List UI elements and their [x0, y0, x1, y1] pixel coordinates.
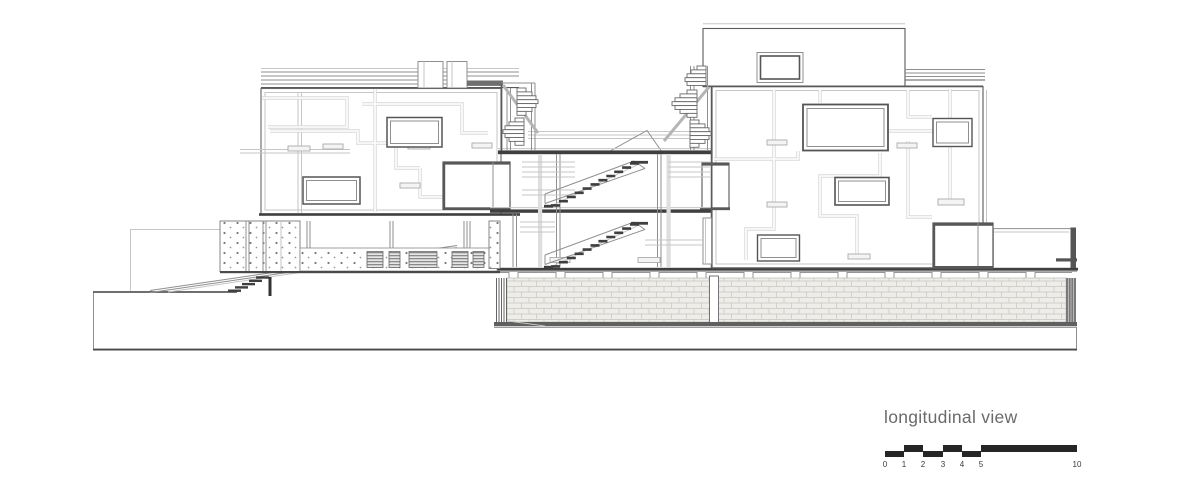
window-right-large	[803, 105, 888, 151]
terrace-railing	[528, 132, 710, 139]
window-penthouse	[757, 53, 803, 83]
roof-box	[447, 62, 467, 89]
central-stair-bay	[490, 66, 712, 269]
basement-wall	[490, 268, 1078, 328]
basement-base-band	[494, 322, 1077, 326]
window-right-mid	[835, 178, 889, 206]
window-left-lower	[303, 177, 360, 204]
window-left-upper	[387, 118, 442, 148]
parapet-post	[1071, 228, 1077, 269]
left-floor-slab	[259, 213, 520, 216]
basement-pier	[710, 276, 719, 323]
roof-box	[418, 62, 443, 89]
door-strip	[703, 218, 712, 264]
dotted-strip	[489, 221, 500, 269]
right-parapet	[905, 70, 985, 77]
parapet-cap	[467, 81, 503, 86]
mid-floor-slab	[490, 209, 712, 212]
view-title: longitudinal view	[884, 407, 1018, 428]
bay-box-left	[443, 162, 510, 210]
joist-band	[497, 271, 1072, 278]
window-right-small	[933, 119, 972, 147]
terrace-slab	[498, 150, 712, 154]
longitudinal-section-drawing	[0, 0, 1200, 495]
entry-plinth	[220, 221, 500, 273]
roof-hatch-triangle	[611, 131, 661, 151]
longitudinal-section-page: longitudinal view 0 1 2 3 4 5 10	[0, 0, 1200, 495]
bay-box-right	[933, 223, 993, 269]
penthouse	[703, 29, 905, 87]
handrail-bar	[1056, 258, 1077, 261]
site-baseline	[93, 349, 1077, 351]
pilotis-columns	[307, 221, 470, 248]
entry-steps	[228, 276, 272, 296]
brick-retaining-wall	[507, 278, 1066, 322]
spiral-stair-left	[501, 83, 538, 151]
balcony-door-box	[700, 163, 730, 210]
dotted-wall	[220, 221, 300, 272]
